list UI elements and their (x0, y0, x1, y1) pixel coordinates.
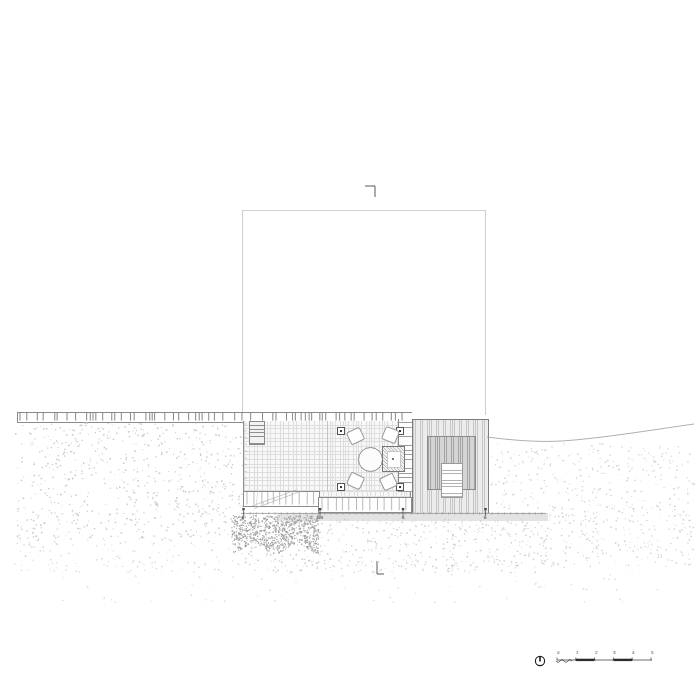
scale-bar-numbers: 0 1 2 3 4 5 (555, 650, 665, 660)
north-arrow-icon (535, 656, 544, 665)
roof-outline (242, 210, 486, 415)
entry-steps (249, 421, 265, 445)
section-marker-top-icon (365, 186, 375, 197)
scale-number: 3 (613, 650, 615, 655)
lower-walk-band-middle (318, 497, 412, 513)
scale-number: 2 (595, 650, 597, 655)
fireplace-block (382, 446, 405, 472)
site-plan-sheet: 0 1 2 3 4 5 B WB B B (0, 0, 700, 700)
terrain-contour-line (487, 424, 694, 441)
scale-number: 5 (651, 650, 653, 655)
stairs (441, 463, 463, 498)
column-marker (337, 483, 345, 491)
round-table (358, 447, 383, 472)
pile-label: B (242, 515, 245, 520)
pile-label: B (402, 515, 405, 520)
scale-number: 0 (557, 650, 559, 655)
scale-number: 4 (632, 650, 634, 655)
pile-label: WB (317, 515, 323, 520)
scale-number: 1 (576, 650, 578, 655)
column-marker (337, 427, 345, 435)
pile-label: B (484, 515, 487, 520)
deck-block (412, 419, 489, 514)
fireplace-core (387, 451, 401, 468)
section-marker-bottom-icon (377, 561, 384, 574)
structural-gridline (327, 421, 328, 491)
lower-walk-band-left (243, 491, 320, 507)
